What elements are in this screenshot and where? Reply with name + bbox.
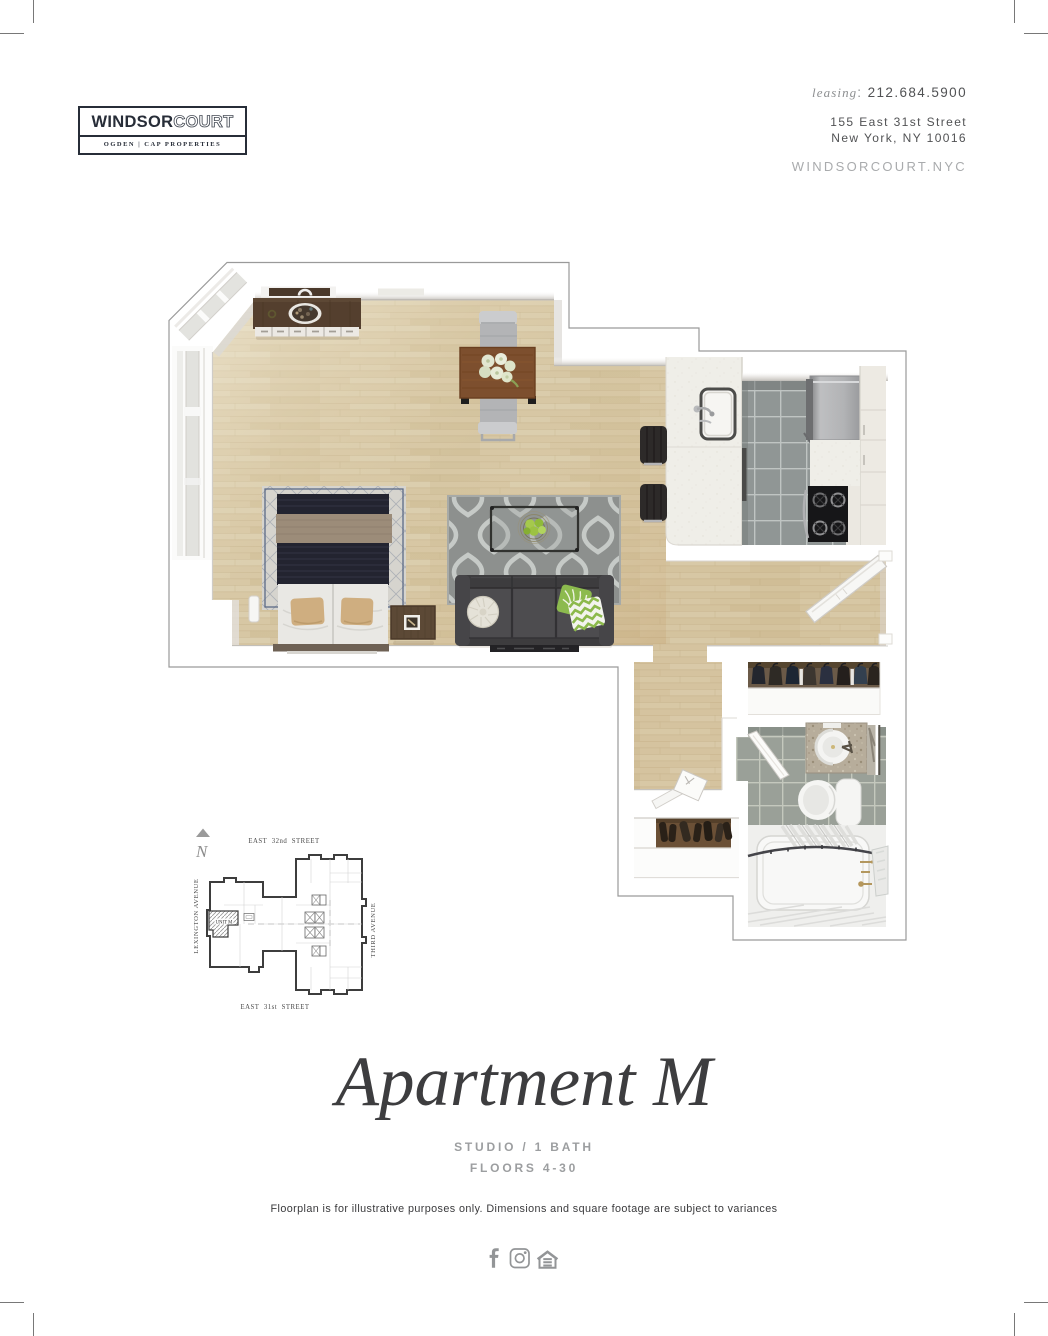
svg-text:LEXINGTON AVENUE: LEXINGTON AVENUE: [193, 878, 200, 953]
svg-text:EAST 31st STREET: EAST 31st STREET: [240, 1004, 309, 1011]
svg-text:N: N: [195, 842, 209, 861]
svg-text:EAST 32nd STREET: EAST 32nd STREET: [248, 838, 320, 845]
svg-text:THIRD AVENUE: THIRD AVENUE: [370, 903, 377, 958]
svg-text:UNIT M: UNIT M: [216, 921, 234, 926]
